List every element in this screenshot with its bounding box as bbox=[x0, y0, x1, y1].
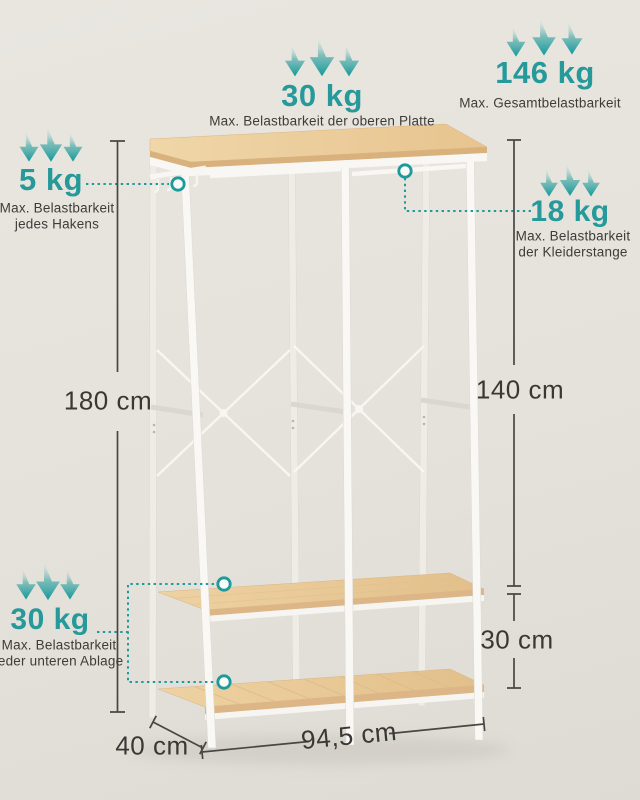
upper-shelf-marker-icon bbox=[218, 578, 230, 590]
lower-shelf-marker-icon bbox=[218, 676, 230, 688]
load-arrows-lower-shelves bbox=[16, 563, 80, 600]
dimension-total-height: 180 cm bbox=[64, 386, 152, 417]
rail-load-value: 18 kg bbox=[530, 195, 609, 229]
dimension-line-rail-140 bbox=[507, 140, 521, 586]
dimension-shelf-spacing: 30 cm bbox=[480, 625, 553, 656]
shelves-load-description-line1: Max. Belastbarkeit bbox=[0, 638, 123, 654]
top-plate-load-value: 30 kg bbox=[281, 78, 363, 114]
top-plate-load-description: Max. Belastbarkeit der oberen Platte bbox=[209, 113, 435, 129]
product-infographic: 30 kg Max. Belastbarkeit der oberen Plat… bbox=[0, 0, 640, 800]
load-arrows-total bbox=[507, 19, 583, 57]
total-load-description: Max. Gesamtbelastbarkeit bbox=[459, 95, 621, 111]
rack-front-posts bbox=[180, 148, 483, 748]
hook-marker-icon bbox=[172, 178, 184, 190]
dimension-rail-height: 140 cm bbox=[476, 375, 564, 406]
rail-load-description: Max. Belastbarkeit der Kleiderstange bbox=[516, 229, 631, 260]
rail-marker-icon bbox=[399, 165, 411, 177]
shelves-load-description: Max. Belastbarkeit jeder unteren Ablage bbox=[0, 638, 123, 669]
total-load-value: 146 kg bbox=[495, 55, 595, 91]
shelves-load-description-line2: jeder unteren Ablage bbox=[0, 653, 123, 669]
rail-load-description-line1: Max. Belastbarkeit bbox=[516, 229, 631, 245]
rail-load-description-line2: der Kleiderstange bbox=[516, 244, 631, 260]
load-arrows-top-plate bbox=[285, 38, 359, 76]
hooks-load-description: Max. Belastbarkeit jedes Hakens bbox=[0, 201, 114, 232]
shelves-load-value: 30 kg bbox=[10, 603, 89, 637]
hooks-load-value: 5 kg bbox=[19, 162, 83, 198]
load-arrows-rail bbox=[540, 164, 600, 197]
load-arrows-hooks bbox=[20, 127, 83, 162]
hooks-load-description-line2: jedes Hakens bbox=[0, 216, 114, 232]
hooks-load-description-line1: Max. Belastbarkeit bbox=[0, 201, 114, 217]
dimension-depth: 40 cm bbox=[115, 731, 188, 762]
